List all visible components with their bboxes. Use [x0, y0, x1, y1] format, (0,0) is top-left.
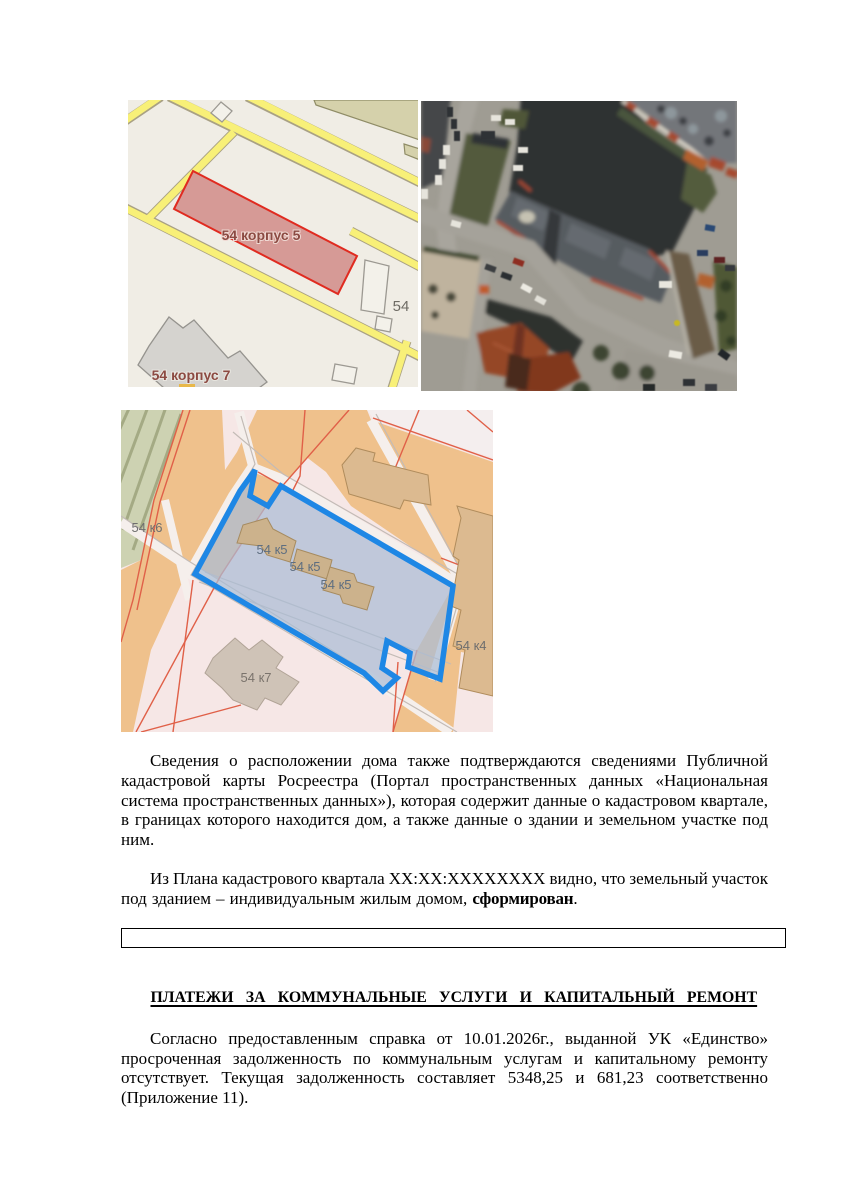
svg-text:54 к7: 54 к7 — [241, 670, 272, 685]
svg-text:54 корпус 5: 54 корпус 5 — [222, 227, 301, 243]
svg-text:54 к5: 54 к5 — [290, 559, 321, 574]
svg-text:54 к4: 54 к4 — [456, 638, 487, 653]
svg-text:54 к5: 54 к5 — [257, 542, 288, 557]
svg-text:54 к6: 54 к6 — [132, 520, 163, 535]
svg-text:54 к5: 54 к5 — [321, 577, 352, 592]
svg-text:54: 54 — [393, 298, 410, 315]
svg-text:54 корпус 7: 54 корпус 7 — [152, 367, 231, 383]
